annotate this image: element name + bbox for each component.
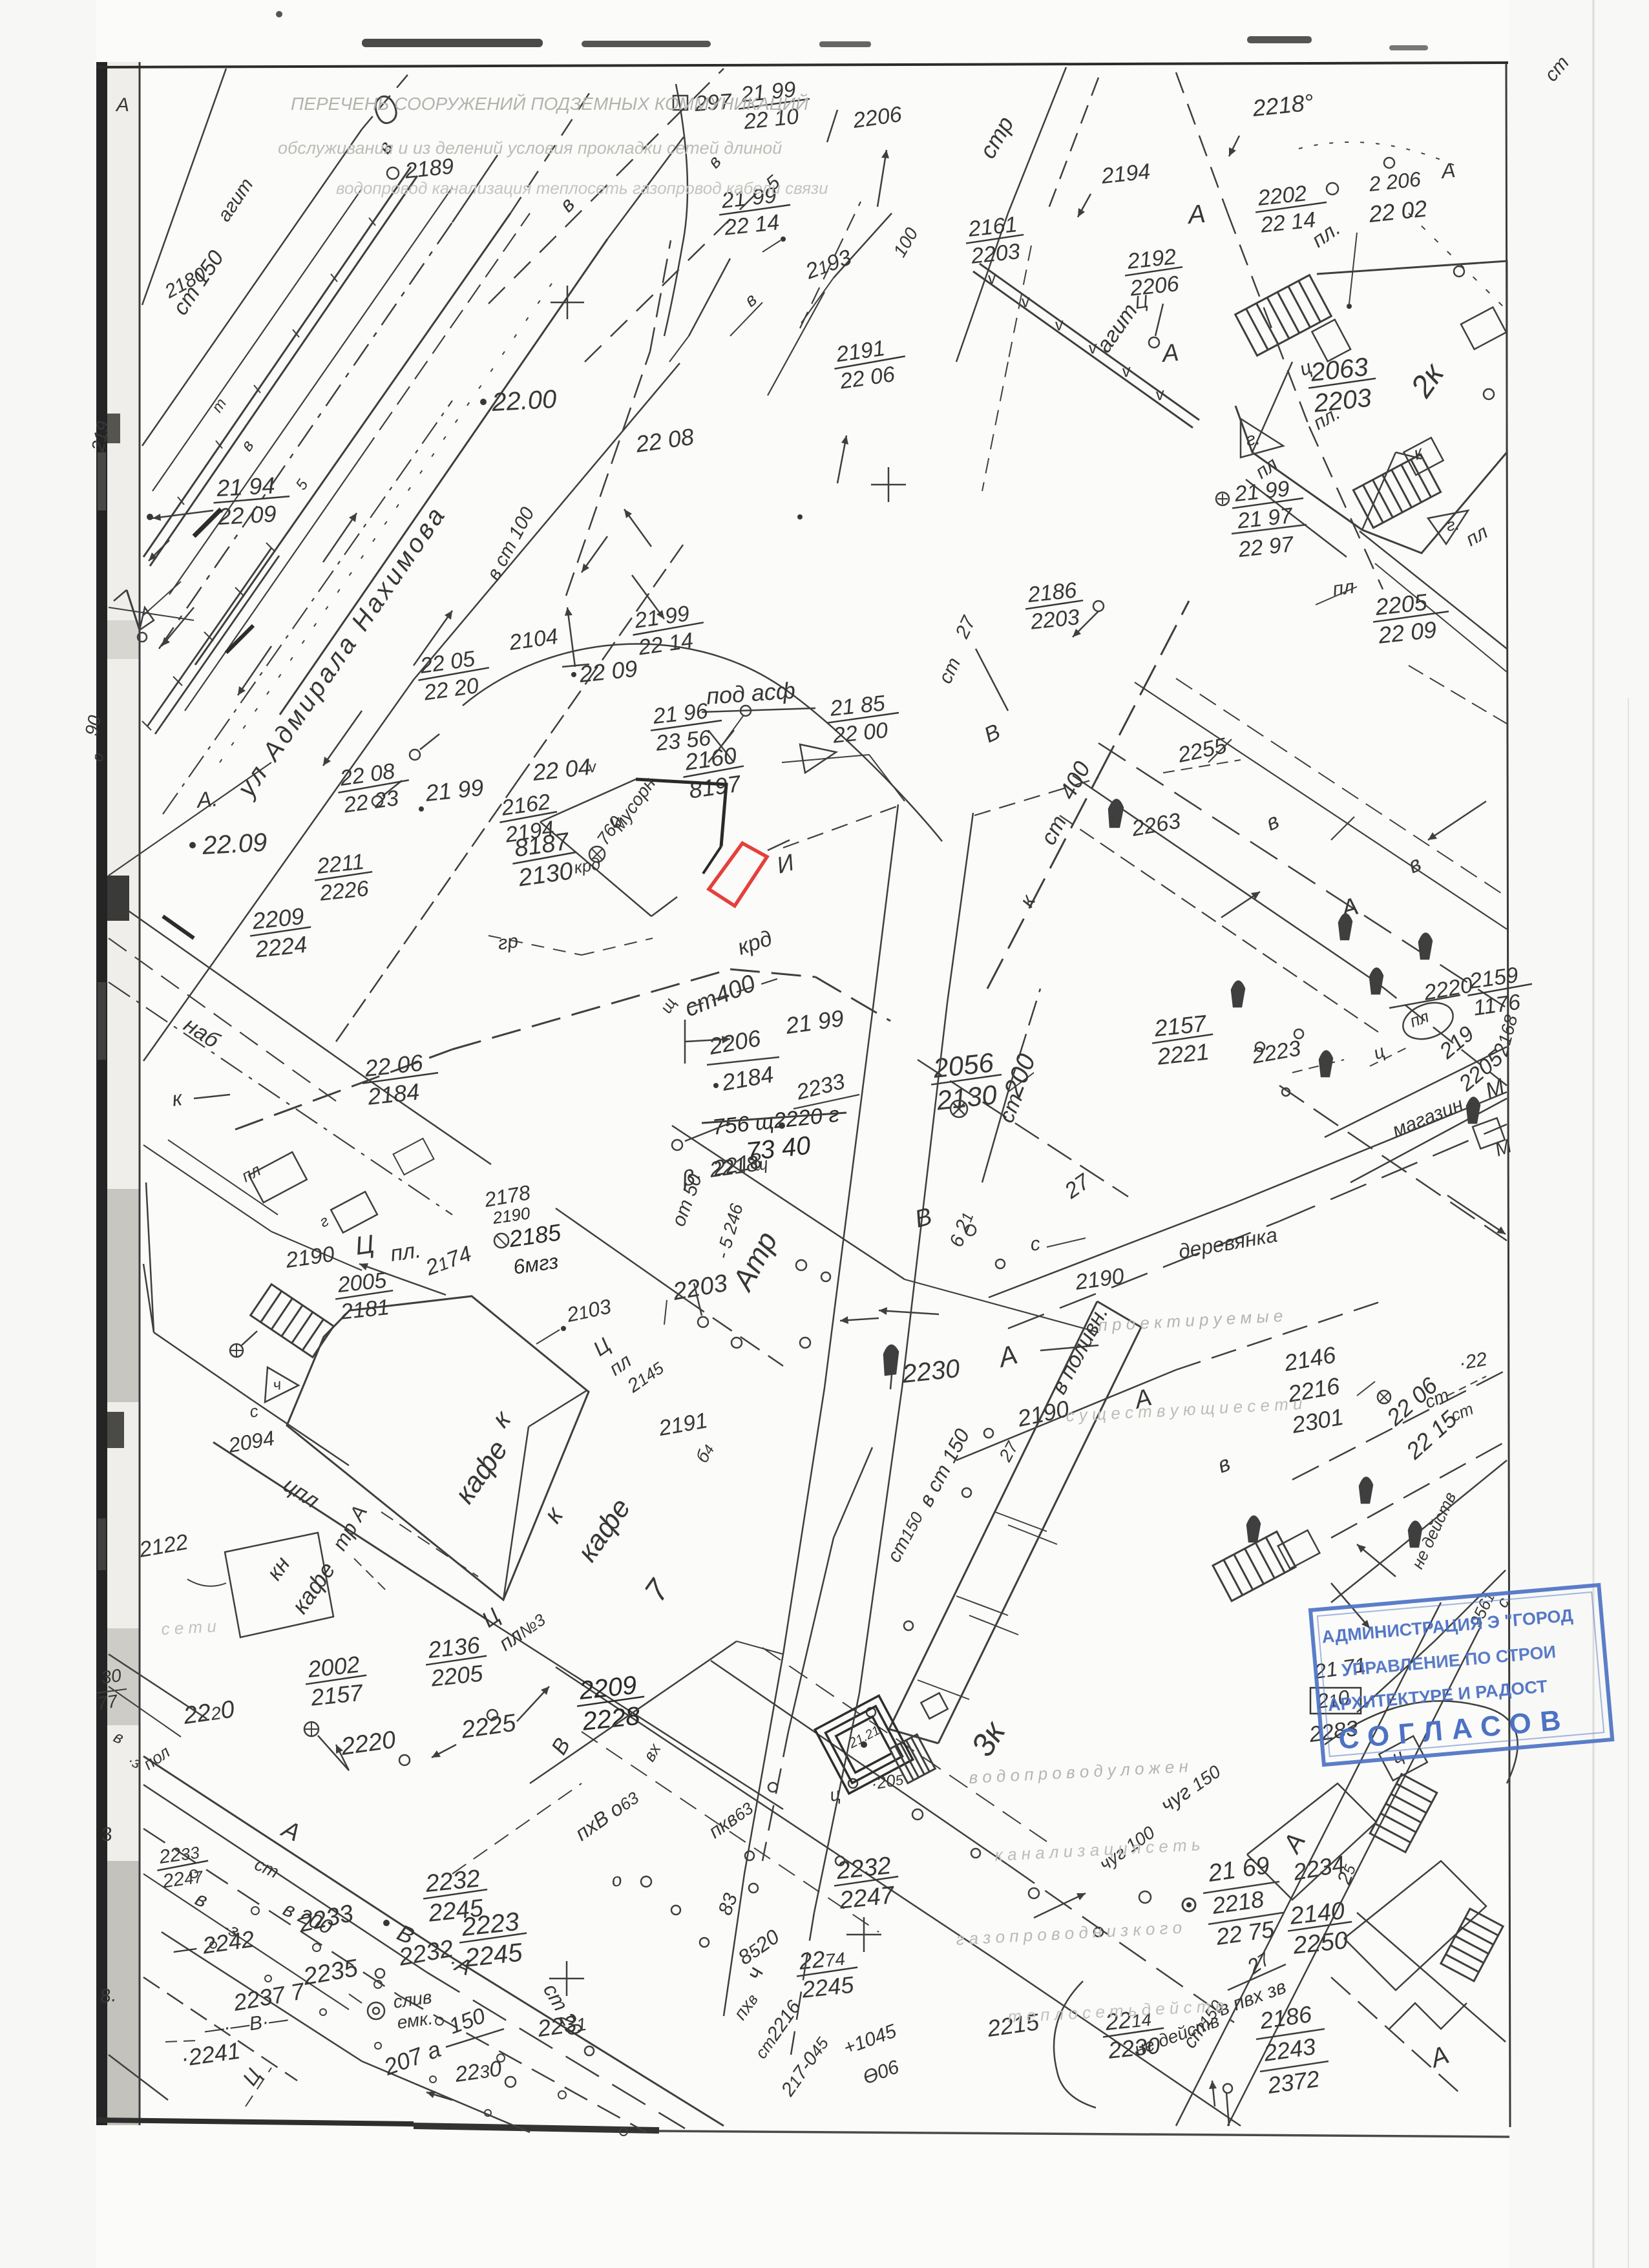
svg-text:2221: 2221 (1155, 1038, 1210, 1070)
svg-text:2140: 2140 (1288, 1897, 1346, 1930)
svg-text:21 94: 21 94 (215, 472, 275, 501)
svg-text:8.: 8. (98, 1984, 117, 2008)
svg-text:г.: г. (1445, 514, 1461, 534)
svg-text:с е т и: с е т и (161, 1617, 217, 1639)
svg-text:2063: 2063 (1308, 353, 1369, 387)
svg-text:2223: 2223 (459, 1907, 520, 1942)
svg-text:2205: 2205 (429, 1659, 485, 1691)
svg-text:22.09: 22.09 (201, 828, 268, 860)
svg-text:2230: 2230 (1106, 2032, 1161, 2064)
svg-text:А: А (115, 94, 129, 116)
svg-text:г.: г. (1245, 428, 1262, 450)
svg-text:2181: 2181 (339, 1295, 390, 1325)
svg-text:ПЕРЕЧЕНЬ СООРУЖЕНИЙ ПОДЗЕМНЫХ: ПЕРЕЧЕНЬ СООРУЖЕНИЙ ПОДЗЕМНЫХ КОММУНИКАЦ… (291, 93, 809, 114)
svg-text:2203: 2203 (969, 239, 1021, 269)
svg-text:2245: 2245 (800, 1971, 856, 2002)
svg-text:гр: гр (496, 930, 520, 954)
svg-text:водопровод канализация теплосе: водопровод канализация теплосеть газопро… (336, 178, 828, 198)
svg-text:ɰ: ɰ (753, 1153, 770, 1175)
svg-text:2203: 2203 (1029, 605, 1080, 635)
svg-text:30: 30 (100, 1665, 123, 1688)
svg-text:2157: 2157 (309, 1679, 365, 1710)
svg-text:2224: 2224 (253, 931, 308, 963)
svg-text:2226: 2226 (318, 876, 370, 906)
svg-text:2232: 2232 (424, 1865, 481, 1898)
svg-text:2184: 2184 (366, 1078, 421, 1110)
svg-text:пл.: пл. (389, 1238, 423, 1266)
svg-text:22.00: 22.00 (490, 385, 557, 417)
svg-text:обслуживания и из делений усло: обслуживания и из делений условия прокла… (278, 138, 782, 158)
svg-text:2209: 2209 (577, 1671, 638, 1705)
svg-text:2230: 2230 (900, 1354, 961, 1389)
svg-text:А: А (1186, 200, 1206, 229)
svg-text:Ц: Ц (353, 1230, 376, 1261)
svg-text:2194: 2194 (1100, 159, 1151, 189)
svg-text:77: 77 (96, 1691, 120, 1714)
svg-text:А: А (1160, 339, 1180, 368)
svg-text:22 09: 22 09 (217, 500, 277, 530)
svg-text:А.: А. (194, 786, 218, 813)
